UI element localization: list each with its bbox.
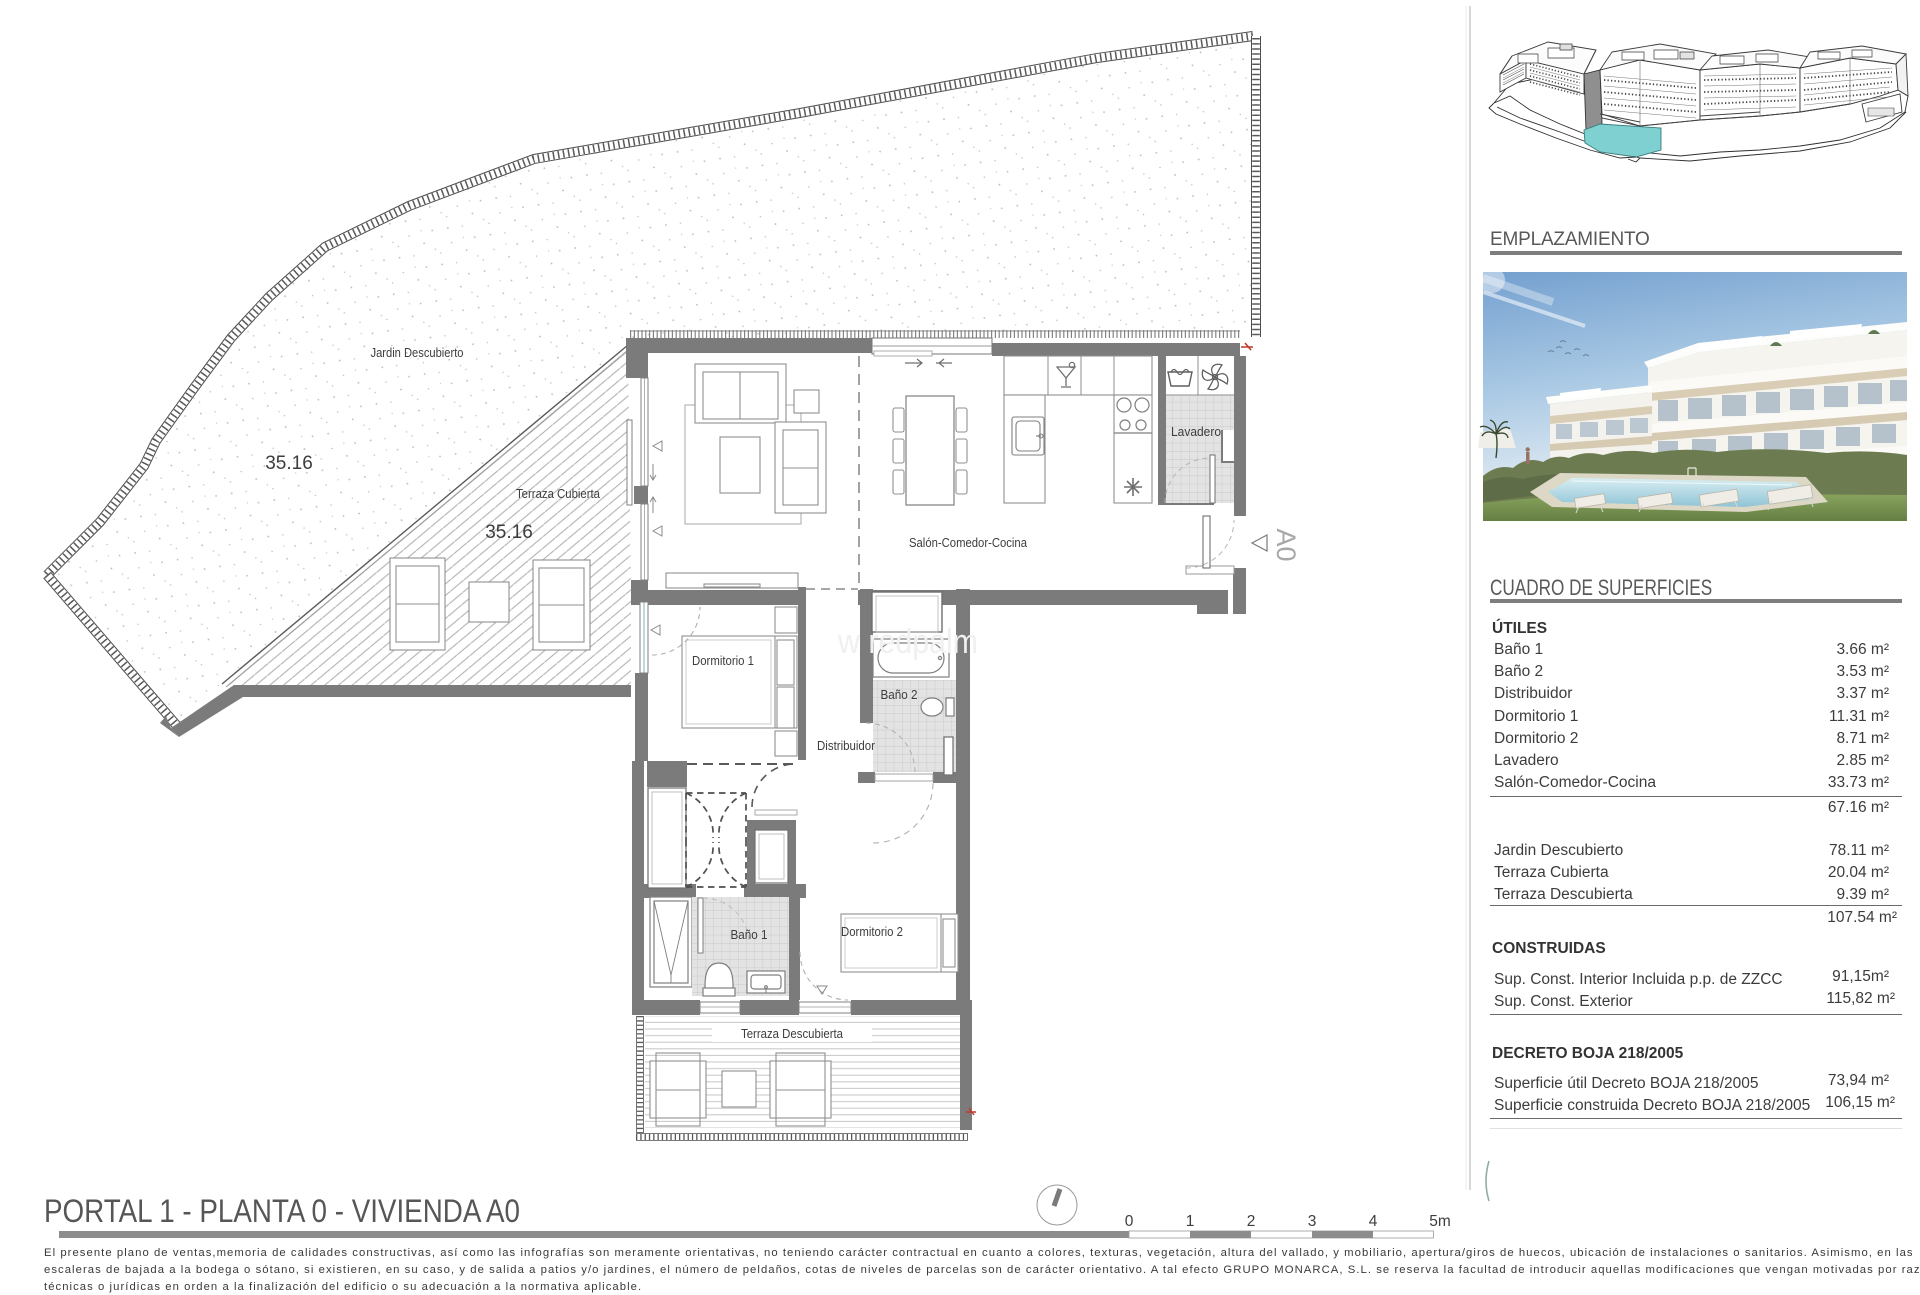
svg-text:Lavadero: Lavadero — [1171, 425, 1221, 439]
svg-text:Dormitorio 2: Dormitorio 2 — [841, 925, 903, 939]
svg-text:Distribuidor: Distribuidor — [817, 739, 875, 753]
svg-text:3: 3 — [1308, 1213, 1317, 1230]
svg-text:2: 2 — [1247, 1213, 1256, 1230]
svg-text:Baño 1: Baño 1 — [731, 928, 768, 942]
svg-text:w redpalm: w redpalm — [837, 623, 978, 661]
svg-text:35.16: 35.16 — [485, 522, 533, 543]
svg-text:Terraza Descubierta: Terraza Descubierta — [741, 1027, 843, 1041]
svg-text:0: 0 — [1125, 1213, 1134, 1230]
svg-text:A0: A0 — [1271, 528, 1301, 561]
svg-text:1: 1 — [1186, 1213, 1195, 1230]
svg-text:Dormitorio 1: Dormitorio 1 — [692, 654, 754, 668]
svg-text:Jardin Descubierto: Jardin Descubierto — [371, 346, 464, 360]
svg-text:Salón-Comedor-Cocina: Salón-Comedor-Cocina — [909, 536, 1027, 550]
svg-text:5m: 5m — [1429, 1213, 1451, 1230]
svg-text:Terraza Cubierta: Terraza Cubierta — [516, 487, 600, 501]
svg-text:Baño 2: Baño 2 — [881, 688, 918, 702]
svg-text:35.16: 35.16 — [265, 453, 313, 474]
svg-text:4: 4 — [1369, 1213, 1378, 1230]
